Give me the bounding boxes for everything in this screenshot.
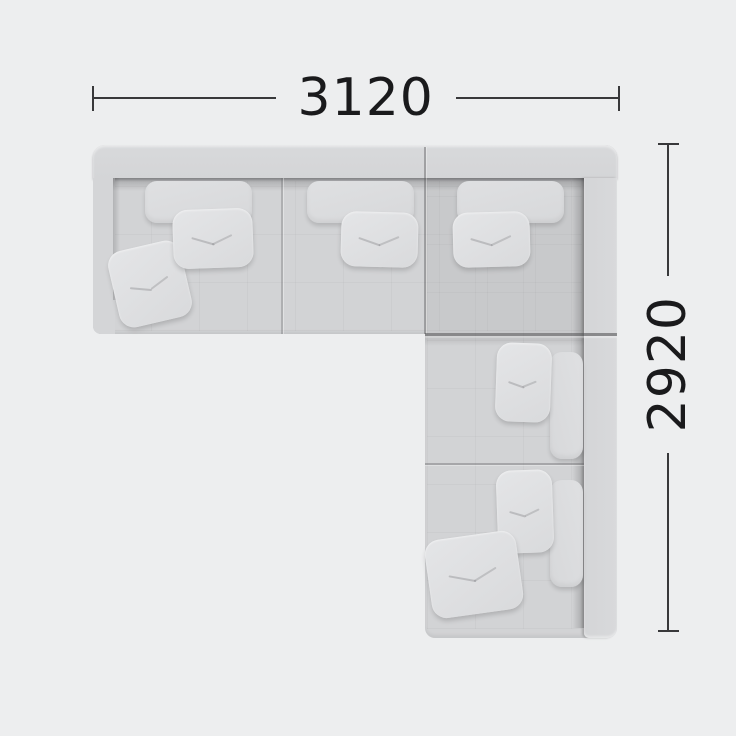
width-dimension-line-left — [94, 97, 276, 99]
module-seam-vertical-2 — [424, 147, 426, 334]
height-dimension-line-top — [667, 145, 669, 276]
headrest-cushion-5 — [550, 480, 583, 587]
throw-pillow-chaise-bottom — [423, 529, 525, 620]
throw-pillow-1 — [172, 208, 254, 270]
module-seam-horizontal-1 — [425, 333, 617, 336]
width-dimension-right-tick — [618, 86, 620, 111]
width-dimension: 3120 — [92, 72, 620, 124]
throw-pillow-4 — [495, 342, 553, 423]
height-dimension-label: 2920 — [642, 296, 694, 432]
backrest-top — [93, 145, 617, 178]
throw-pillow-2 — [340, 211, 418, 268]
headrest-cushion-4 — [550, 352, 583, 459]
height-dimension-bottom-tick — [658, 630, 679, 632]
width-dimension-line-right — [456, 97, 618, 99]
height-dimension: 2920 — [642, 143, 694, 632]
throw-pillow-3 — [452, 211, 530, 268]
width-dimension-label: 3120 — [298, 72, 434, 124]
furniture-dimension-diagram: 3120 2920 — [0, 0, 736, 736]
module-seam-horizontal-2 — [425, 463, 584, 465]
sofa-top-view — [93, 145, 617, 638]
height-dimension-line-bottom — [667, 453, 669, 630]
module-seam-vertical-1 — [281, 178, 283, 334]
backrest-right — [584, 178, 617, 638]
